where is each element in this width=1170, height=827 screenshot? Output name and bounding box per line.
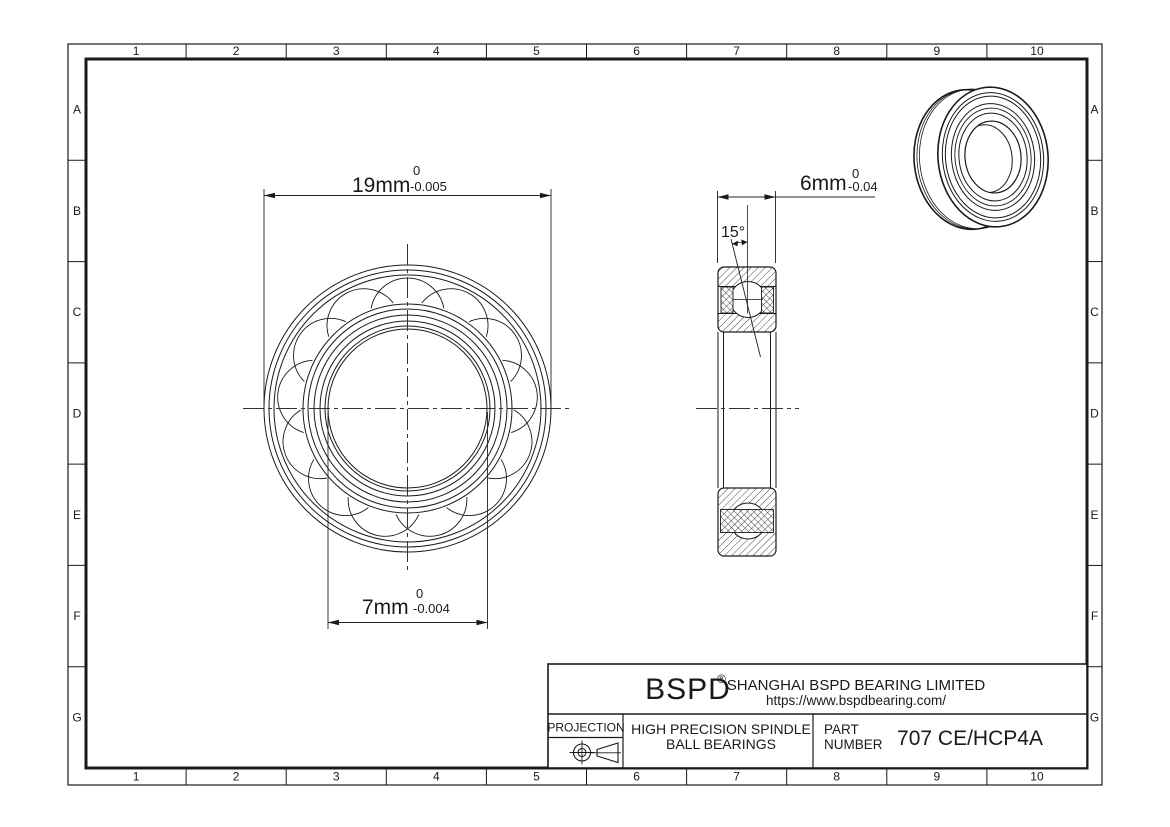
product-description-line1: HIGH PRECISION SPINDLE (631, 721, 811, 737)
part-label-line2: NUMBER (824, 737, 883, 752)
grid-col-label: 7 (733, 770, 740, 784)
grid-col-label: 3 (333, 770, 340, 784)
grid-col-label: 3 (333, 44, 340, 58)
dim-arrow-right (477, 620, 488, 626)
cage-section-left (721, 287, 733, 313)
grid-row-label: E (1090, 508, 1098, 522)
projection-label: PROJECTION (547, 721, 624, 735)
grid-col-label: 9 (934, 770, 941, 784)
grid-row-label: F (73, 609, 80, 623)
cage-section-right (762, 287, 774, 313)
cage-front-band (721, 510, 774, 533)
company-website: https://www.bspdbearing.com/ (766, 693, 946, 708)
od-dim-tol-upper: 0 (413, 163, 420, 178)
grid-row-label: B (73, 204, 81, 218)
bore-dim-tol-lower: -0.004 (413, 601, 450, 616)
od-dim-tol-lower: -0.005 (410, 179, 447, 194)
width-dim-tol-lower: -0.04 (848, 179, 878, 194)
grid-row-label: C (73, 305, 82, 319)
grid-col-label: 7 (733, 44, 740, 58)
grid-col-label: 4 (433, 770, 440, 784)
grid-col-label: 1 (133, 770, 140, 784)
bore-dim-text: 7mm (362, 596, 409, 619)
grid-row-label: E (73, 508, 81, 522)
bearing-isometric-view (907, 82, 1055, 235)
grid-row-label: G (72, 710, 81, 724)
registered-trademark: ® (717, 672, 726, 686)
grid-row-label: D (1090, 407, 1099, 421)
grid-col-label: 1 (133, 44, 140, 58)
dim-arrow-left (718, 194, 729, 200)
grid-col-label: 10 (1030, 44, 1044, 58)
grid-row-label: G (1090, 710, 1099, 724)
bore-wall-lines (718, 332, 776, 488)
angle-arrow-left (732, 241, 738, 247)
part-number-value: 707 CE/HCP4A (897, 727, 1043, 750)
grid-col-label: 5 (533, 770, 540, 784)
title-block: BSPD ® SHANGHAI BSPD BEARING LIMITED htt… (547, 664, 1087, 768)
grid-row-label: A (73, 103, 81, 117)
dim-arrow-right (765, 194, 776, 200)
dim-arrow-left (264, 193, 275, 199)
bearing-section-view: 15° 6mm 0 -0.04 (696, 166, 878, 556)
grid-col-label: 9 (934, 44, 941, 58)
part-label-line1: PART (824, 722, 859, 737)
technical-drawing: 1122334455667788991010AABBCCDDEEFFGG 19m… (0, 0, 1170, 827)
grid-col-label: 4 (433, 44, 440, 58)
dim-arrow-left (328, 620, 339, 626)
grid-col-label: 6 (633, 44, 640, 58)
engineering-drawing-page: 1122334455667788991010AABBCCDDEEFFGG 19m… (0, 0, 1170, 827)
grid-row-label: D (73, 407, 82, 421)
grid-col-label: 2 (233, 44, 240, 58)
grid-col-label: 10 (1030, 770, 1044, 784)
grid-col-label: 8 (833, 770, 840, 784)
grid-row-label: F (1091, 609, 1098, 623)
grid-col-label: 8 (833, 44, 840, 58)
company-name: SHANGHAI BSPD BEARING LIMITED (727, 677, 986, 694)
grid-row-label: B (1090, 204, 1098, 218)
grid-row-label: A (1090, 103, 1098, 117)
grid-col-label: 2 (233, 770, 240, 784)
product-description-line2: BALL BEARINGS (666, 736, 776, 752)
grid-col-label: 6 (633, 770, 640, 784)
angle-label: 15° (721, 224, 745, 241)
dim-arrow-right (540, 193, 551, 199)
od-dim-text: 19mm (352, 174, 410, 197)
grid-col-label: 5 (533, 44, 540, 58)
grid-row-label: C (1090, 305, 1099, 319)
bore-dim-tol-upper: 0 (416, 586, 423, 601)
bearing-front-view: 19mm 0 -0.005 7mm 0 -0.004 (243, 163, 573, 629)
width-dim-text: 6mm (800, 172, 847, 195)
